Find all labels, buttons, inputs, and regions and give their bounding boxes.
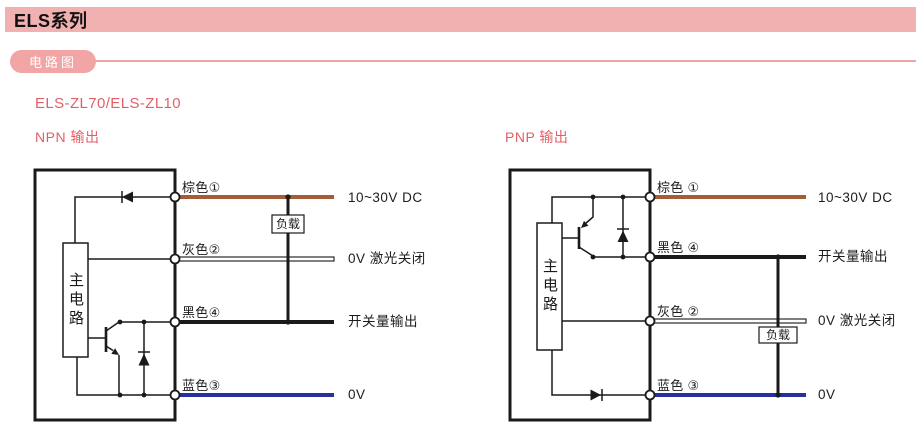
pnp-sensor-outline-box: [510, 170, 650, 420]
npn-terminal-black: [171, 318, 180, 327]
npn-signal-power: 10~30V DC: [348, 190, 423, 205]
npn-main-circuit-label: 主电路: [63, 245, 88, 355]
npn-zener-diode: [138, 322, 150, 395]
npn-transistor: [88, 322, 175, 395]
npn-circuit-diagram: 负载 棕色① 灰色② 黑色④ 蓝色③ 10~30V DC 0V 激光关闭 开关量…: [35, 170, 426, 420]
circuit-diagrams: 负载 棕色① 灰色② 黑色④ 蓝色③ 10~30V DC 0V 激光关闭 开关量…: [0, 0, 921, 436]
datasheet-page: ELS系列 电路图 ELS-ZL70/ELS-ZL10 NPN 输出 PNP 输…: [0, 0, 921, 436]
pnp-transistor: [562, 197, 650, 257]
pnp-signal-laser-off: 0V 激光关闭: [818, 313, 896, 328]
npn-terminal-gray: [171, 255, 180, 264]
npn-signal-0v: 0V: [348, 387, 366, 402]
npn-terminal-blue: [171, 391, 180, 400]
pnp-load-branch: 负载: [759, 254, 797, 397]
pnp-wire-label-black: 黑色 ④: [657, 240, 699, 255]
npn-signal-laser-off: 0V 激光关闭: [348, 251, 426, 266]
npn-terminal-brown: [171, 193, 180, 202]
npn-wire-label-gray: 灰色②: [182, 242, 221, 257]
pnp-reverse-protection-diode: [591, 389, 603, 401]
pnp-main-circuit-label: 主电路: [537, 225, 562, 348]
pnp-signal-0v: 0V: [818, 387, 836, 402]
pnp-junction-dots: [591, 195, 626, 260]
npn-gray-wire: [177, 257, 334, 261]
pnp-signal-power: 10~30V DC: [818, 190, 893, 205]
npn-wire-label-blue: 蓝色③: [182, 378, 221, 393]
pnp-wire-label-gray: 灰色 ②: [657, 304, 699, 319]
pnp-zener-diode: [617, 197, 629, 257]
pnp-wire-label-brown: 棕色 ①: [657, 180, 699, 195]
pnp-terminal-gray: [646, 317, 655, 326]
pnp-gray-wire: [652, 319, 806, 323]
npn-wire-label-black: 黑色④: [182, 305, 221, 320]
npn-internal-wiring: [75, 191, 175, 397]
pnp-terminal-blue: [646, 391, 655, 400]
pnp-signal-output: 开关量输出: [818, 249, 888, 264]
npn-wire-label-brown: 棕色①: [182, 180, 221, 195]
npn-load-label: 负载: [276, 217, 300, 231]
pnp-internal-wiring: [552, 195, 650, 401]
pnp-load-label: 负载: [766, 328, 790, 342]
pnp-wire-label-blue: 蓝色 ③: [657, 378, 699, 393]
pnp-terminal-black: [646, 253, 655, 262]
pnp-circuit-diagram: 负载 棕色 ① 黑色 ④ 灰色 ② 蓝色 ③ 10~30V DC 开关量输出 0…: [510, 170, 896, 420]
npn-signal-output: 开关量输出: [348, 314, 418, 329]
pnp-terminal-brown: [646, 193, 655, 202]
npn-sensor-outline-box: [35, 170, 175, 420]
npn-reverse-protection-diode: [122, 191, 133, 203]
